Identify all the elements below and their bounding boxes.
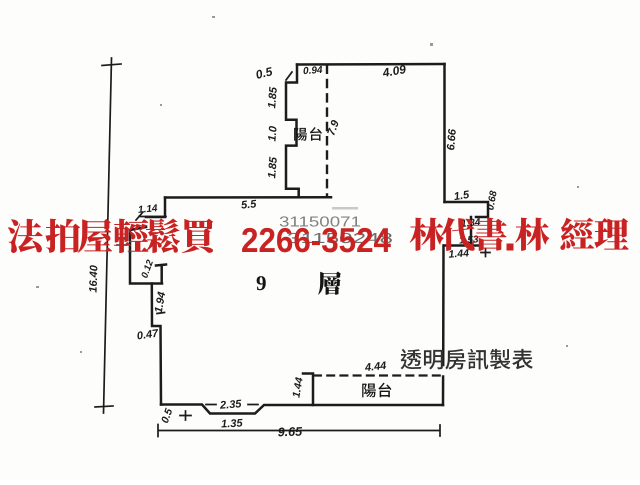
svg-text:9.65: 9.65: [277, 425, 303, 440]
svg-text:0.94: 0.94: [303, 65, 324, 77]
svg-text:1.0: 1.0: [266, 125, 279, 142]
svg-text:1.35: 1.35: [221, 417, 244, 430]
svg-text:16.40: 16.40: [88, 264, 101, 293]
svg-text:5.5: 5.5: [241, 198, 258, 211]
svg-text:4.44: 4.44: [363, 360, 387, 374]
svg-text:2.35: 2.35: [219, 398, 243, 412]
svg-text:1.14: 1.14: [138, 203, 159, 216]
svg-text:1.85: 1.85: [266, 86, 280, 109]
svg-text:1.5: 1.5: [453, 189, 471, 203]
svg-text:1.44: 1.44: [448, 247, 469, 260]
svg-text:2266-3524: 2266-3524: [241, 222, 391, 260]
svg-text:9: 9: [256, 271, 267, 295]
svg-text:6.66: 6.66: [445, 128, 459, 151]
svg-text:1.85: 1.85: [266, 156, 280, 179]
